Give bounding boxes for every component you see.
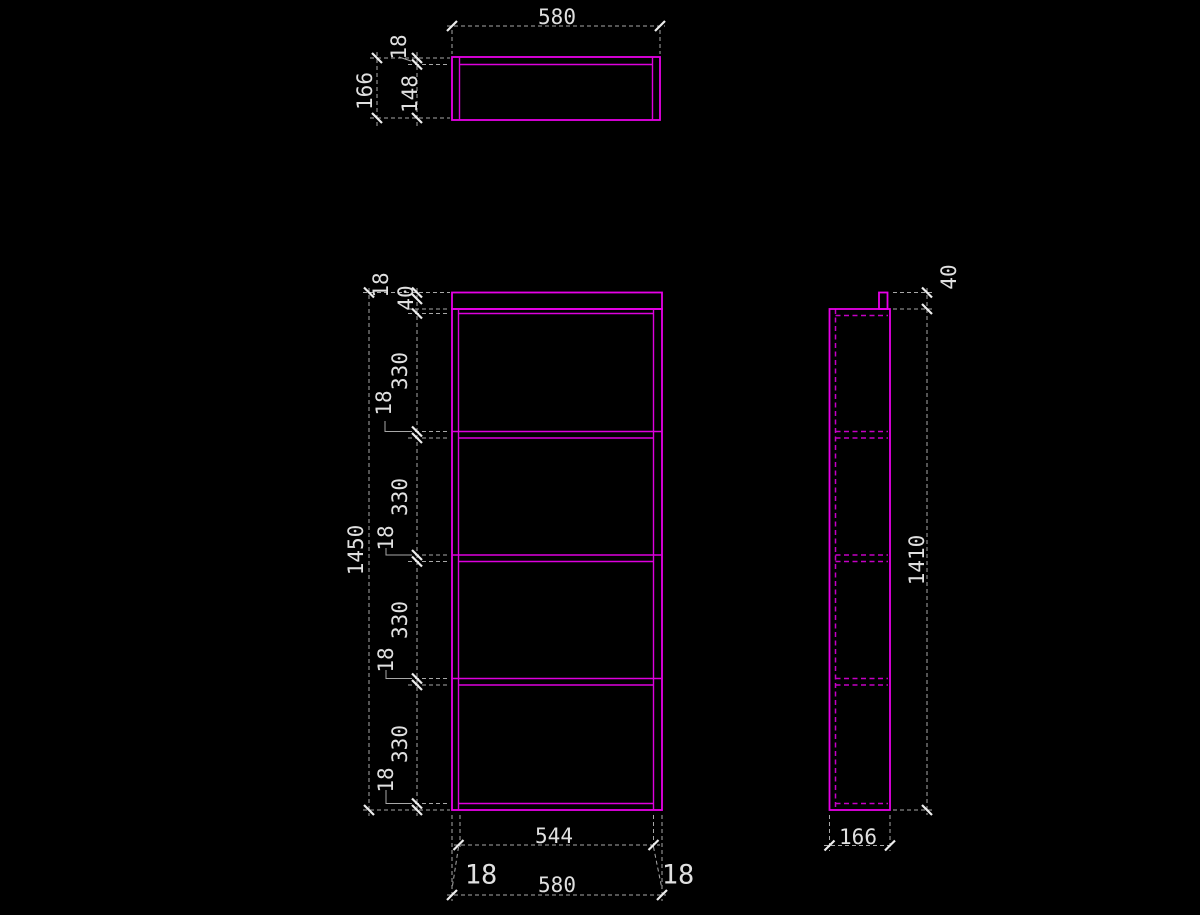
dimension-line — [452, 847, 459, 889]
dimension-label: 18 — [374, 525, 398, 550]
dimension-label: 18 — [369, 272, 393, 297]
dim-tick — [655, 21, 665, 31]
dimension-label: 148 — [398, 75, 422, 113]
dimension-label: 544 — [535, 824, 573, 848]
edge-rect — [452, 293, 662, 310]
dimension-label: 330 — [388, 601, 412, 639]
dimension-lines-layer — [363, 26, 933, 901]
dimension-label: 40 — [937, 264, 961, 289]
dimension-label: 18 — [374, 767, 398, 792]
dimension-label: 166 — [839, 825, 877, 849]
dimension-label: 18 — [662, 860, 695, 891]
dimension-label: 330 — [388, 725, 412, 763]
edge-rect — [452, 309, 662, 810]
edge-rect — [830, 309, 891, 810]
dimension-label: 1450 — [344, 525, 368, 576]
edge-rect — [879, 293, 888, 310]
dimension-label: 18 — [374, 647, 398, 672]
dimension-ticks-layer — [364, 21, 932, 900]
dimension-label: 166 — [353, 72, 377, 110]
dimension-leader — [385, 421, 410, 432]
dimension-label: 580 — [538, 5, 576, 29]
cad-drawing-stage: 5801816614814501840330183301833018330185… — [0, 0, 1200, 915]
dim-tick — [885, 841, 895, 851]
dimension-label: 18 — [372, 390, 396, 415]
hidden-edges-layer — [836, 309, 889, 810]
dimension-label: 330 — [388, 478, 412, 516]
cad-canvas: 5801816614814501840330183301833018330185… — [0, 0, 1200, 915]
solid-edges-layer — [452, 57, 890, 810]
dimension-label: 330 — [388, 352, 412, 390]
dimension-label: 18 — [387, 34, 411, 59]
dimension-text-layer: 5801816614814501840330183301833018330185… — [344, 5, 961, 897]
dimension-label: 40 — [394, 285, 418, 310]
dimension-line — [654, 847, 663, 889]
edge-rect — [452, 57, 660, 120]
dimension-label: 1410 — [905, 535, 929, 586]
dimension-label: 580 — [538, 873, 576, 897]
dimension-label: 18 — [465, 860, 498, 891]
